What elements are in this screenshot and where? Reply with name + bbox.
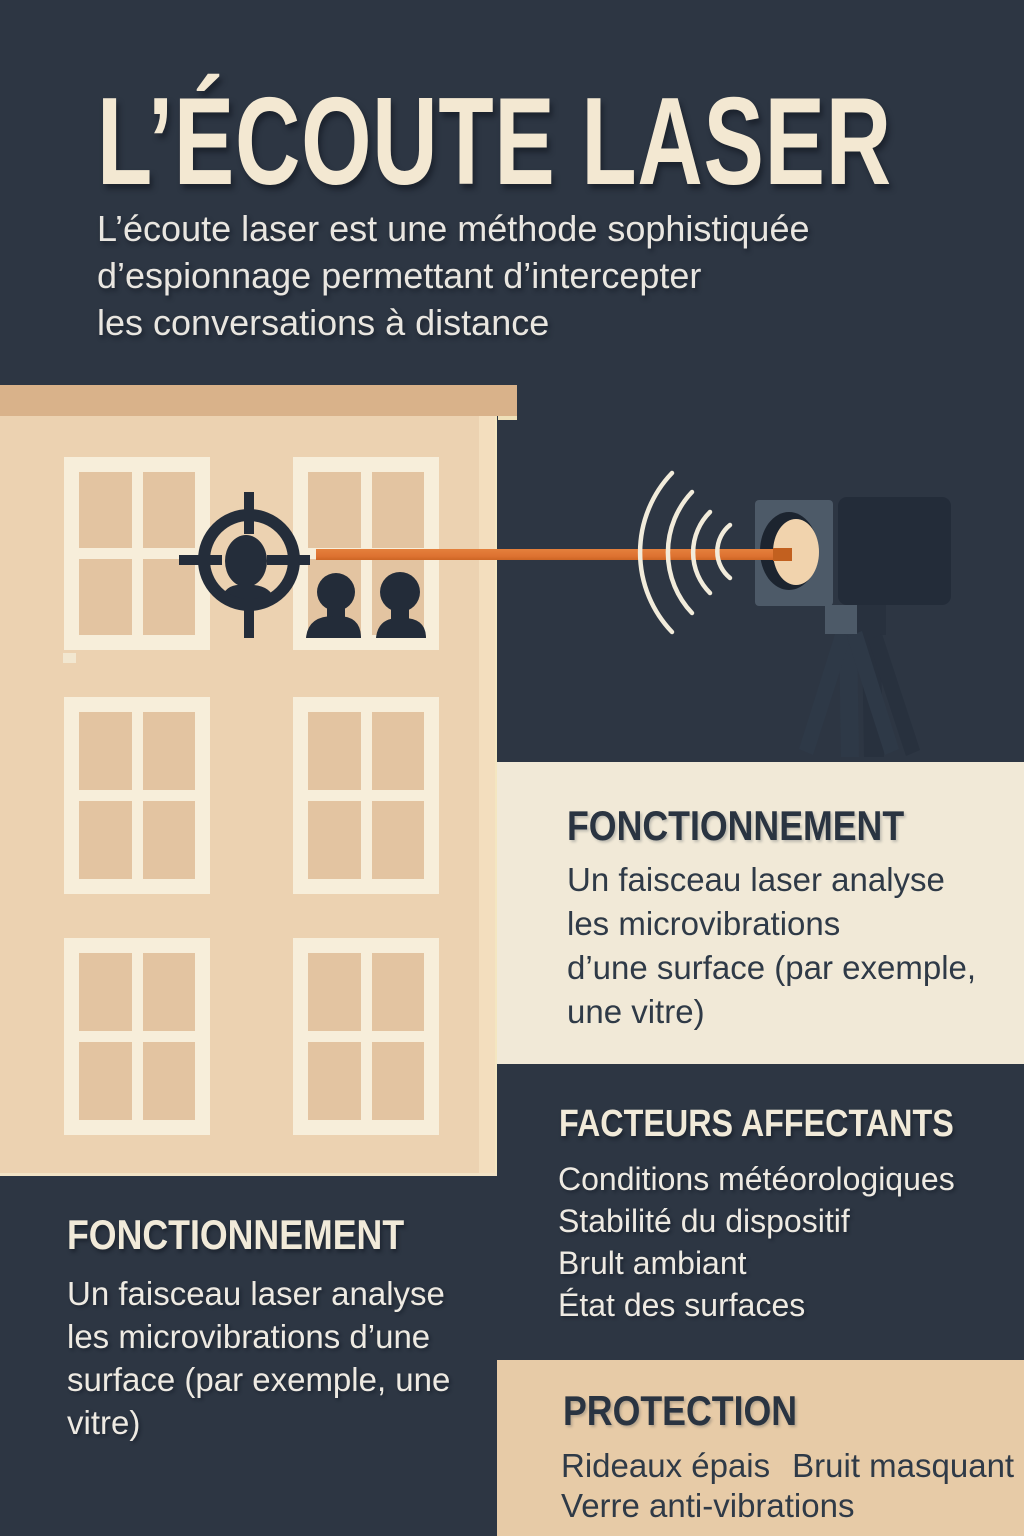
building-roof (0, 385, 517, 416)
building-roof-edge (498, 416, 517, 420)
fonctionnement-left-heading: FONCTIONNEMENT (67, 1214, 404, 1256)
window-pane (372, 712, 425, 790)
device-front-panel (755, 500, 833, 606)
facteurs-list: Conditions météorologiques Stabilité du … (558, 1158, 955, 1326)
window-pane (308, 1042, 361, 1120)
poster-title: L’ÉCOUTE LASER (97, 80, 892, 204)
window-pane (143, 559, 196, 635)
lens-ring (760, 512, 818, 590)
window-pane (308, 559, 361, 635)
window-pane (308, 472, 361, 548)
facteurs-item: Brult ambiant (558, 1242, 955, 1284)
protection-item: Verre anti-vibrations (561, 1486, 854, 1526)
window-pane (143, 472, 196, 548)
protection-item: Rideaux épais (561, 1446, 770, 1486)
fonctionnement-right-heading: FONCTIONNEMENT (567, 805, 904, 847)
window-pane (79, 801, 132, 879)
device-shadow (857, 605, 920, 757)
window-pane (372, 953, 425, 1031)
protection-item: Bruit masquant (792, 1446, 1014, 1486)
window-pane (79, 712, 132, 790)
poster-subtitle: L’écoute laser est une méthode sophistiq… (97, 205, 810, 346)
fonctionnement-left-body: Un faisceau laser analyse les microvibra… (67, 1272, 450, 1444)
window (64, 457, 210, 650)
device-lens (773, 519, 819, 585)
fonctionnement-right-body: Un faisceau laser analyse les microvibra… (567, 858, 976, 1034)
poster-background: L’ÉCOUTE LASER L’écoute laser est une mé… (0, 0, 1024, 1536)
window-pane (372, 559, 425, 635)
window-pane (372, 472, 425, 548)
facteurs-item: Conditions météorologiques (558, 1158, 955, 1200)
window-sill-detail (63, 653, 76, 663)
window-pane (143, 801, 196, 879)
protection-panel: PROTECTION Rideaux épais Bruit masquant … (497, 1360, 1024, 1536)
window-pane (308, 953, 361, 1031)
tripod-icon (799, 631, 899, 757)
fonctionnement-panel: FONCTIONNEMENT Un faisceau laser analyse… (497, 762, 1024, 1064)
laser-device-icon (755, 497, 951, 757)
window (293, 457, 439, 650)
window-pane (372, 801, 425, 879)
device-mount (825, 605, 857, 634)
window (293, 697, 439, 894)
window-pane (308, 712, 361, 790)
window (64, 697, 210, 894)
sound-waves-icon (640, 473, 730, 632)
window-pane (79, 559, 132, 635)
window-pane (143, 712, 196, 790)
window-pane (143, 1042, 196, 1120)
window (293, 938, 439, 1135)
window-pane (308, 801, 361, 879)
device-body (838, 497, 951, 605)
window-pane (79, 472, 132, 548)
window-pane (79, 953, 132, 1031)
building-facade (0, 416, 497, 1176)
building-edge-highlight (479, 416, 497, 1173)
window-pane (143, 953, 196, 1031)
protection-row: Rideaux épais Bruit masquant (561, 1446, 1014, 1486)
window-pane (79, 1042, 132, 1120)
facteurs-item: Stabilité du dispositif (558, 1200, 955, 1242)
protection-heading: PROTECTION (563, 1390, 797, 1432)
facteurs-heading: FACTEURS AFFECTANTS (559, 1105, 954, 1143)
window (64, 938, 210, 1135)
window-pane (372, 1042, 425, 1120)
facteurs-item: État des surfaces (558, 1284, 955, 1326)
